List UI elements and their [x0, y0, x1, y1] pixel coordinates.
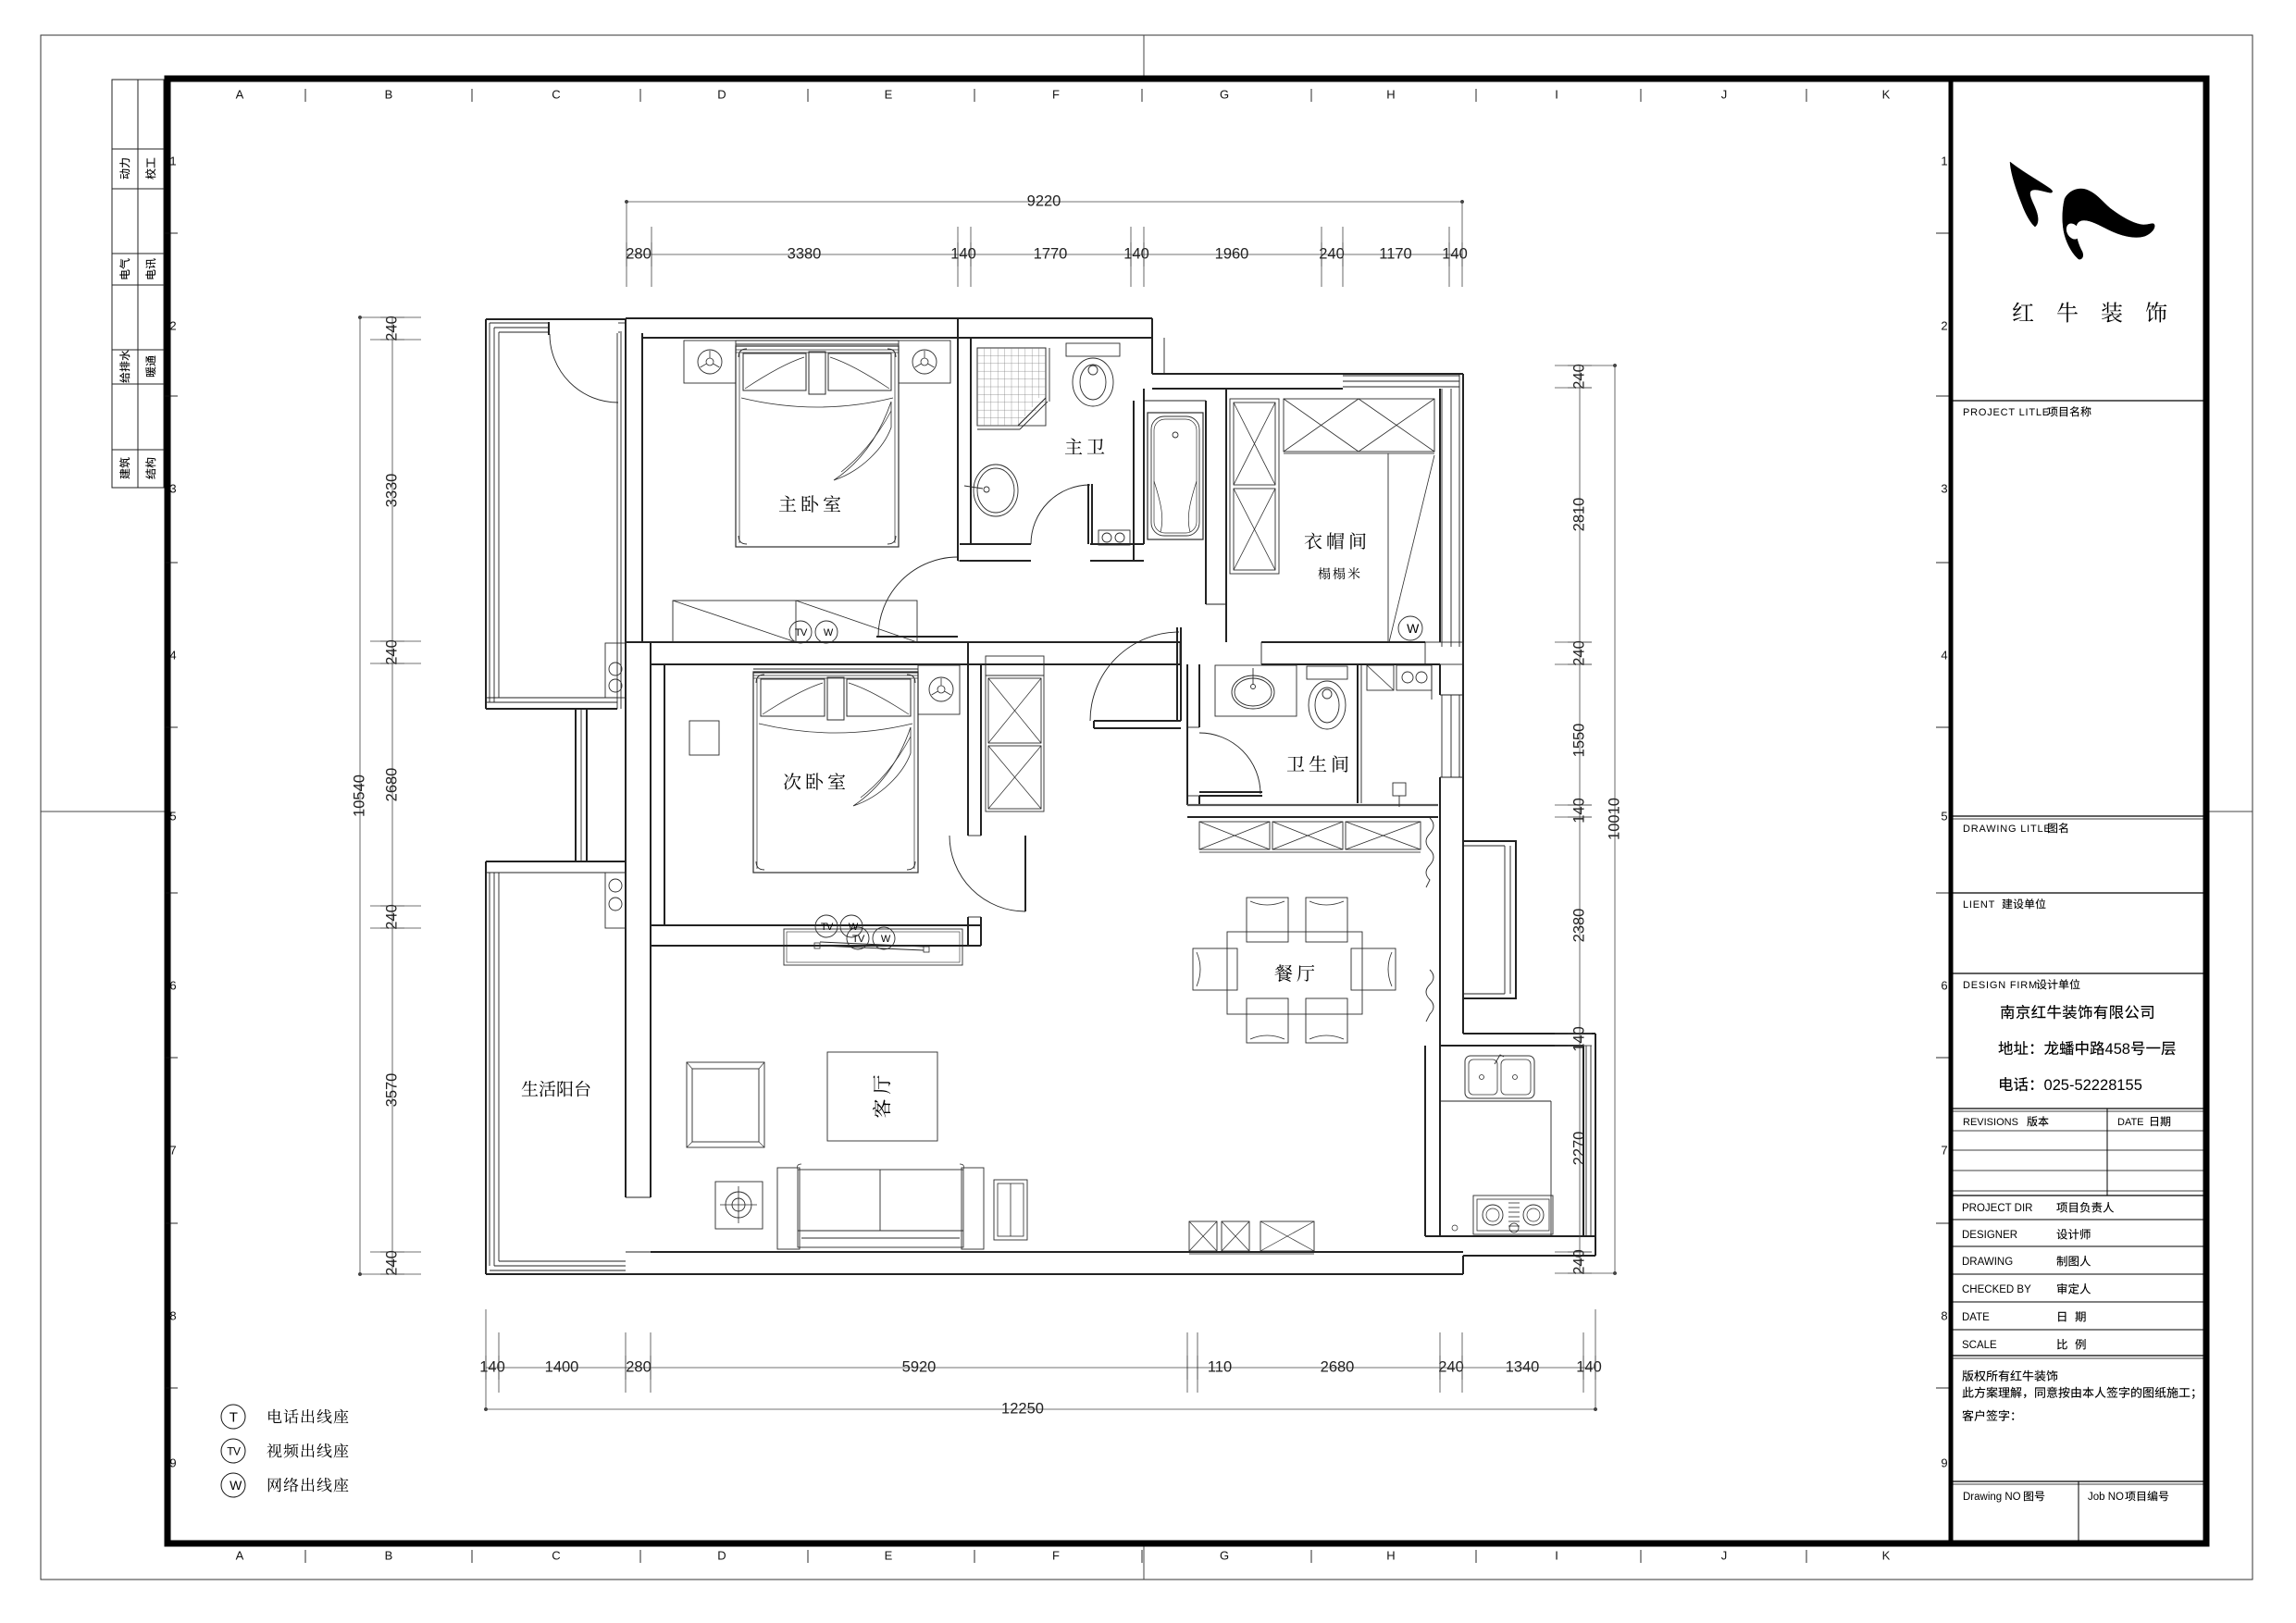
svg-text:3330: 3330	[383, 474, 400, 508]
svg-text:2680: 2680	[1321, 1358, 1355, 1375]
svg-text:B: B	[385, 1548, 393, 1562]
svg-text:1340: 1340	[1506, 1358, 1540, 1375]
svg-text:8: 8	[169, 1308, 176, 1322]
svg-text:W: W	[881, 934, 891, 945]
svg-text:4: 4	[2105, 1041, 2114, 1058]
svg-text:K: K	[1882, 87, 1891, 101]
svg-text:140: 140	[1576, 1358, 1602, 1375]
svg-text:140: 140	[950, 245, 976, 262]
svg-text:1960: 1960	[1215, 245, 1249, 262]
svg-text:V: V	[233, 1444, 241, 1457]
svg-text:A: A	[236, 1548, 244, 1562]
svg-text:0: 0	[2044, 1077, 2053, 1094]
svg-text:I: I	[1555, 87, 1558, 101]
svg-text:G: G	[1220, 1548, 1229, 1562]
svg-text:3380: 3380	[788, 245, 822, 262]
svg-text:6: 6	[1941, 978, 1947, 992]
svg-text:9: 9	[1941, 1456, 1947, 1469]
svg-text:12250: 12250	[1001, 1400, 1044, 1417]
svg-text:D: D	[717, 1548, 726, 1562]
svg-text:DRAWING: DRAWING	[1962, 1257, 2013, 1268]
svg-text:4: 4	[169, 648, 176, 662]
svg-text:7: 7	[1941, 1143, 1947, 1157]
svg-text:CHECKED BY: CHECKED BY	[1962, 1284, 2031, 1295]
svg-text:5: 5	[2126, 1077, 2134, 1094]
svg-text:DESIGNER: DESIGNER	[1962, 1230, 2017, 1241]
svg-text:1770: 1770	[1034, 245, 1068, 262]
svg-text:DRAWING LITLE: DRAWING LITLE	[1963, 824, 2052, 835]
svg-text:3: 3	[169, 481, 176, 495]
svg-text:E: E	[885, 87, 893, 101]
svg-text:9220: 9220	[1027, 192, 1061, 209]
svg-text:Job NO: Job NO	[2088, 1492, 2124, 1503]
svg-text:140: 140	[479, 1358, 505, 1375]
svg-text:V: V	[826, 922, 834, 933]
svg-text:6: 6	[169, 978, 176, 992]
svg-text:140: 140	[1123, 245, 1149, 262]
svg-text:I: I	[1555, 1548, 1558, 1562]
svg-text:T: T	[230, 1409, 238, 1425]
svg-text:240: 240	[1570, 1249, 1587, 1275]
svg-text:H: H	[1386, 1548, 1395, 1562]
svg-text:240: 240	[1438, 1358, 1464, 1375]
svg-text:E: E	[885, 1548, 893, 1562]
svg-text:9: 9	[169, 1456, 176, 1469]
svg-text:H: H	[1386, 87, 1395, 101]
svg-text:G: G	[1220, 87, 1229, 101]
svg-text:B: B	[385, 87, 393, 101]
svg-text:DESIGN FIRM: DESIGN FIRM	[1963, 980, 2038, 991]
svg-text:W: W	[1407, 621, 1420, 636]
svg-text:2680: 2680	[383, 768, 400, 802]
svg-text:240: 240	[1570, 640, 1587, 666]
svg-text:8: 8	[2122, 1041, 2130, 1058]
svg-text:1: 1	[2116, 1077, 2125, 1094]
svg-text:2: 2	[2053, 1077, 2061, 1094]
svg-text:10010: 10010	[1606, 798, 1622, 840]
svg-text:280: 280	[626, 245, 652, 262]
svg-text:2: 2	[2083, 1077, 2091, 1094]
svg-text:2: 2	[2091, 1077, 2100, 1094]
svg-text:2270: 2270	[1570, 1132, 1587, 1166]
svg-text:240: 240	[383, 639, 400, 665]
svg-text:240: 240	[383, 316, 400, 341]
svg-text:2: 2	[1941, 318, 1947, 332]
svg-text:5: 5	[2061, 1077, 2069, 1094]
svg-text:1170: 1170	[1379, 245, 1411, 262]
svg-text:F: F	[1052, 1548, 1060, 1562]
svg-text:240: 240	[383, 1250, 400, 1276]
svg-text:DATE: DATE	[2117, 1117, 2144, 1128]
svg-text:10540: 10540	[351, 774, 367, 817]
svg-text:1400: 1400	[545, 1358, 579, 1375]
svg-text:K: K	[1882, 1548, 1891, 1562]
svg-text:110: 110	[1208, 1358, 1232, 1375]
svg-text:8: 8	[1941, 1308, 1947, 1322]
svg-text:3570: 3570	[383, 1073, 400, 1108]
svg-text:5: 5	[1941, 809, 1947, 823]
svg-text:Drawing NO: Drawing NO	[1963, 1492, 2021, 1503]
svg-text:J: J	[1721, 87, 1728, 101]
svg-text:1550: 1550	[1570, 724, 1587, 758]
svg-text:2: 2	[169, 318, 176, 332]
svg-text:LIENT: LIENT	[1963, 899, 1995, 911]
svg-text:V: V	[800, 627, 808, 638]
svg-text:W: W	[849, 922, 859, 933]
svg-text:240: 240	[1319, 245, 1345, 262]
svg-text:2380: 2380	[1570, 909, 1587, 943]
svg-text:DATE: DATE	[1962, 1312, 1990, 1323]
svg-text:3: 3	[1941, 481, 1947, 495]
svg-text:W: W	[824, 627, 834, 638]
svg-text:A: A	[236, 87, 244, 101]
svg-text:C: C	[552, 1548, 560, 1562]
svg-text:140: 140	[1570, 1026, 1587, 1052]
svg-text:PROJECT LITLE: PROJECT LITLE	[1963, 407, 2050, 418]
svg-text:2810: 2810	[1570, 498, 1587, 532]
svg-text:240: 240	[1570, 364, 1587, 390]
svg-text:D: D	[717, 87, 726, 101]
svg-text:PROJECT DIR: PROJECT DIR	[1962, 1203, 2032, 1214]
svg-text:5: 5	[2114, 1041, 2122, 1058]
svg-text:REVISIONS: REVISIONS	[1963, 1117, 2018, 1128]
svg-text:5920: 5920	[902, 1358, 937, 1375]
svg-text:W: W	[230, 1478, 242, 1493]
svg-text:140: 140	[1570, 798, 1587, 824]
svg-text:J: J	[1721, 1548, 1728, 1562]
svg-text:V: V	[858, 934, 865, 945]
svg-text:5: 5	[169, 809, 176, 823]
svg-text:2: 2	[2100, 1077, 2108, 1094]
svg-text:280: 280	[626, 1358, 652, 1375]
svg-text:8: 8	[2108, 1077, 2116, 1094]
svg-text:F: F	[1052, 87, 1060, 101]
svg-text:5: 5	[2134, 1077, 2142, 1094]
svg-text:140: 140	[1442, 245, 1468, 262]
svg-text:1: 1	[1941, 154, 1947, 167]
svg-text:C: C	[552, 87, 560, 101]
svg-text:SCALE: SCALE	[1962, 1340, 1997, 1351]
svg-text:240: 240	[383, 904, 400, 930]
svg-text:5: 5	[2075, 1077, 2083, 1094]
svg-text:7: 7	[169, 1143, 176, 1157]
svg-text:4: 4	[1941, 648, 1947, 662]
svg-text:1: 1	[169, 154, 176, 167]
